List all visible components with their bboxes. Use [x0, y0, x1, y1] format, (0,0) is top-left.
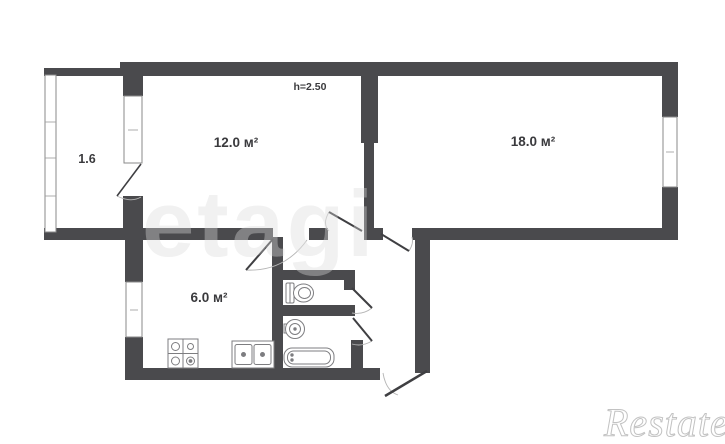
stove-icon — [168, 339, 198, 368]
room18-door-leaf — [381, 234, 409, 251]
wall-segment — [361, 76, 378, 143]
balcony-door-window — [124, 96, 142, 163]
kitchen-window — [126, 282, 142, 337]
kitchen-area-label: 6.0 м² — [191, 290, 229, 305]
door-arc — [409, 237, 413, 251]
floor-plan-image: etagi — [0, 0, 725, 444]
room18-area-label: 18.0 м² — [511, 134, 556, 149]
wall-segment — [662, 62, 678, 117]
bathroom-sink-icon — [284, 320, 305, 339]
floor-plan-page: etagi — [0, 0, 725, 444]
wall-segment — [125, 368, 380, 380]
wall-segment — [123, 76, 143, 96]
wall-segment — [283, 305, 355, 316]
wall-segment — [125, 228, 143, 282]
watermark-restate: Restate — [603, 400, 725, 444]
balcony-door-leaf — [117, 164, 141, 196]
balcony-area-label: 1.6 — [78, 152, 95, 166]
toilet-icon — [286, 283, 314, 303]
entrance-door-leaf — [385, 371, 427, 396]
bathroom-door-leaf — [353, 318, 372, 341]
wall-segment — [120, 62, 678, 76]
bathtub-icon — [284, 348, 334, 367]
ceiling-height-label: h=2.50 — [294, 81, 327, 93]
balcony-window — [45, 75, 56, 232]
room12-area-label: 12.0 м² — [214, 135, 259, 150]
kitchen-sink-icon — [232, 341, 274, 368]
wall-segment — [123, 196, 143, 228]
wall-segment — [412, 228, 678, 240]
wall-segment — [415, 240, 430, 373]
watermark-etagi-overlay: etagi — [142, 171, 376, 276]
